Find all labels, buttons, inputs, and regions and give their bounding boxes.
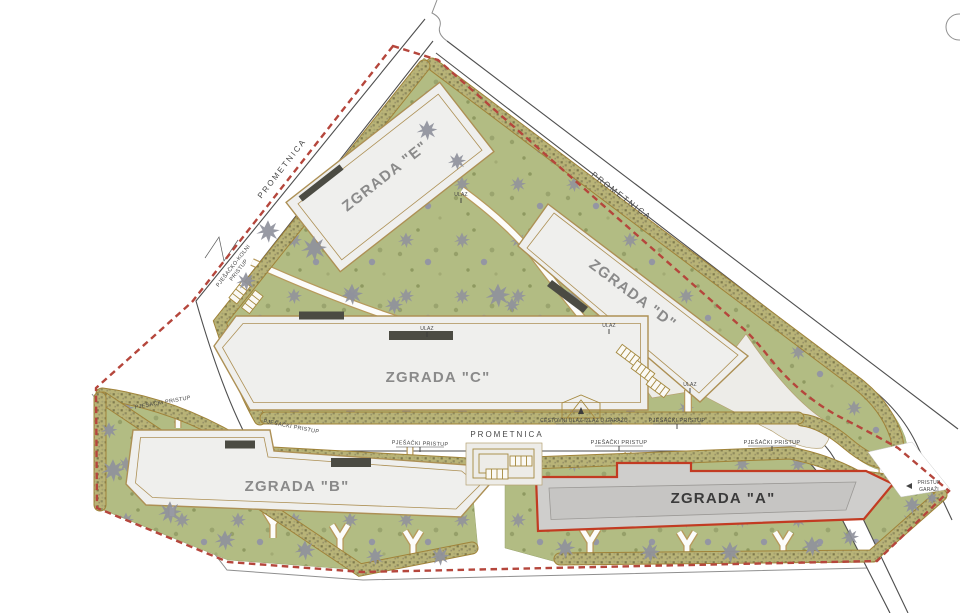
building-c-label: ZGRADA "C" <box>386 369 491 386</box>
entrance-label: ULAZ <box>683 382 697 388</box>
pedestrian-access-label: PJEŠAČKI PRISTUP <box>744 439 801 446</box>
rooflight-bar <box>299 312 344 320</box>
rooflight-bar <box>225 441 255 449</box>
site-plan-page: ZGRADA "E" ZGRADA "D" ZGRADA "C" ZGRADA … <box>0 0 960 613</box>
garage-access-label: PRISTUP <box>917 480 941 486</box>
road-label-bottom: PROMETNICA <box>470 430 543 439</box>
building-b-label: ZGRADA "B" <box>245 478 350 495</box>
pedestrian-access-label: PJEŠAČKI PRISTUP <box>591 439 648 446</box>
entrance-label: ULAZ <box>420 326 434 332</box>
garage-entry-exit-label: CESTOVNI ULAZ-IZLAZ U GARAŽU <box>540 416 628 424</box>
entrance-label: ULAZ <box>602 323 616 329</box>
building-a-label: ZGRADA "A" <box>671 490 776 507</box>
garage-ramp-complex <box>466 443 542 485</box>
rooflight-bar <box>331 458 371 467</box>
svg-text:GARAŽI: GARAŽI <box>919 485 939 493</box>
site-plan-drawing: ZGRADA "E" ZGRADA "D" ZGRADA "C" ZGRADA … <box>0 0 960 613</box>
rooflight-bar <box>389 331 453 340</box>
pedestrian-access-label: PJEŠAČKI PRISTUP <box>649 417 706 424</box>
entrance-label: ULAZ <box>454 192 468 198</box>
